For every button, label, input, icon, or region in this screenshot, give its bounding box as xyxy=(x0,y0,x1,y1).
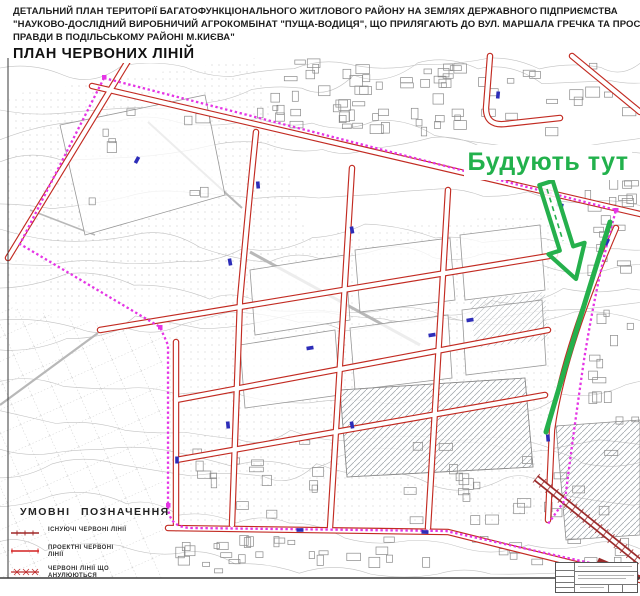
legend-label: ЧЕРВОНІ ЛІНІЇ ЩО АНУЛЮЮТЬСЯ xyxy=(48,566,128,580)
existing-red-line-symbol xyxy=(10,528,40,538)
title-line-1: ДЕТАЛЬНИЙ ПЛАН ТЕРИТОРІЇ БАГАТОФУНКЦІОНА… xyxy=(0,0,640,18)
legend-title: УМОВНІ ПОЗНАЧЕННЯ xyxy=(20,506,180,518)
title-block xyxy=(555,562,638,593)
projected-red-line-symbol xyxy=(10,546,40,556)
annulled-red-line-symbol xyxy=(10,567,40,577)
map-legend: УМОВНІ ПОЗНАЧЕННЯ ІСНУЮЧІ ЧЕРВОНІ ЛІНІЇ … xyxy=(10,506,180,587)
legend-item-projected: ПРОЕКТНІ ЧЕРВОНІ ЛІНІЇ xyxy=(10,545,180,559)
sheet-header: ДЕТАЛЬНИЙ ПЛАН ТЕРИТОРІЇ БАГАТОФУНКЦІОНА… xyxy=(0,0,640,63)
annotation-label: Будують тут xyxy=(467,148,628,177)
legend-label: ІСНУЮЧІ ЧЕРВОНІ ЛІНІЇ xyxy=(48,527,128,534)
plan-sheet: ДЕТАЛЬНИЙ ПЛАН ТЕРИТОРІЇ БАГАТОФУНКЦІОНА… xyxy=(0,0,640,596)
title-line-3: ПРАВДИ В ПОДІЛЬСЬКОМУ РАЙОНІ М.КИЄВА" xyxy=(0,31,640,44)
title-line-2: "НАУКОВО-ДОСЛІДНИЙ ВИРОБНИЧИЙ АГРОКОМБІН… xyxy=(0,18,640,31)
legend-item-existing: ІСНУЮЧІ ЧЕРВОНІ ЛІНІЇ xyxy=(10,527,180,538)
legend-label: ПРОЕКТНІ ЧЕРВОНІ ЛІНІЇ xyxy=(48,545,128,559)
legend-item-annulled: ЧЕРВОНІ ЛІНІЇ ЩО АНУЛЮЮТЬСЯ xyxy=(10,566,180,580)
sheet-subtitle: ПЛАН ЧЕРВОНИХ ЛІНІЙ xyxy=(13,45,201,63)
annotation-label-box: Будують тут xyxy=(464,145,632,180)
